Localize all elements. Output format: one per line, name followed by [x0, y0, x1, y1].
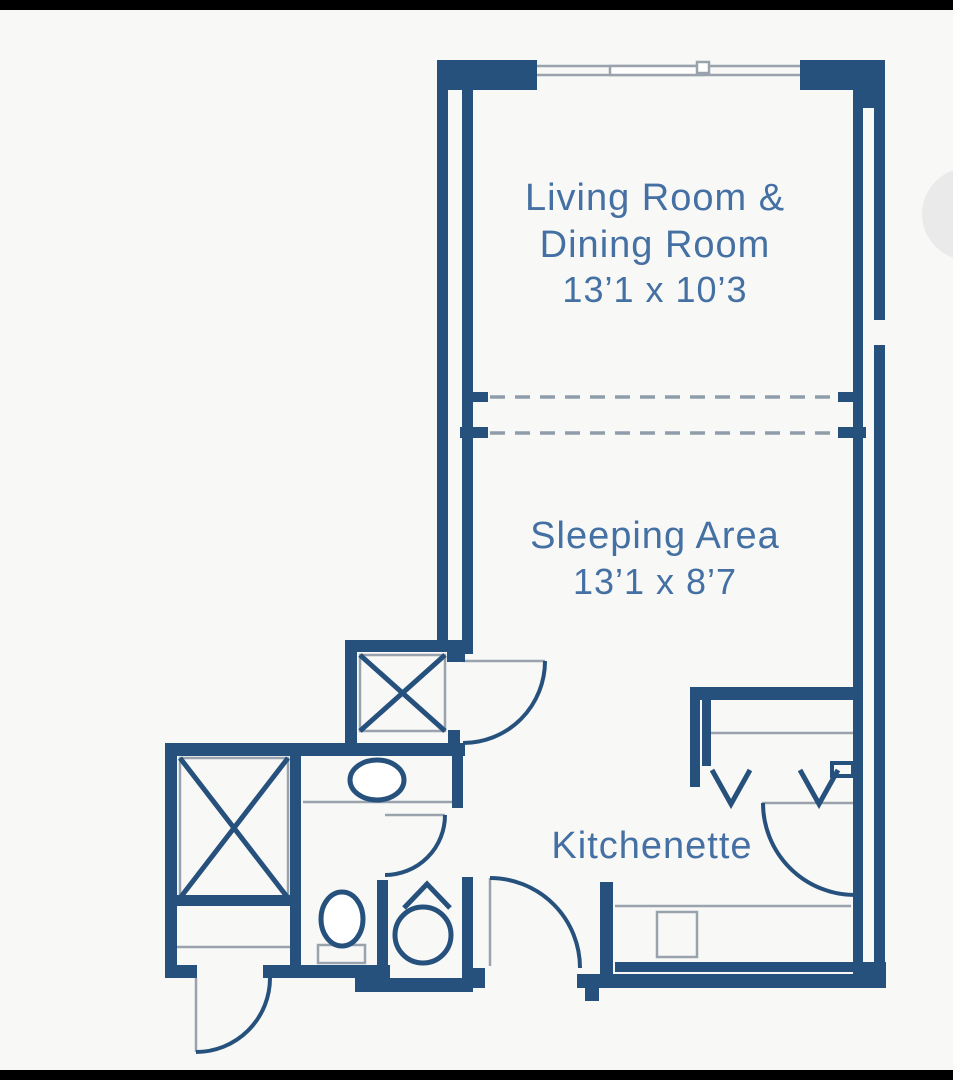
wall-bottom-exterior: [577, 974, 886, 988]
sleeping-area-label: Sleeping Area: [530, 515, 780, 557]
sleeping-area-dimensions: 13’1 x 8’7: [573, 561, 737, 602]
living-room-label-line1: Living Room &: [525, 177, 785, 219]
toilet-icon: [321, 892, 363, 946]
wall-toilet-shower-divider: [377, 880, 388, 972]
wall-closet-right-top: [690, 687, 863, 700]
wall-kitchen-inner-bottom: [615, 962, 855, 972]
wall-far-left: [165, 743, 177, 978]
wall-left-exterior: [437, 60, 448, 652]
wall-closet-small-top: [345, 640, 465, 652]
wall-top-left-block: [437, 60, 537, 90]
bottom-frame-bar: [0, 1070, 953, 1080]
wall-left-inner-upper: [462, 88, 473, 394]
wall-right-inner-upper: [853, 88, 863, 394]
wall-closet-small-left: [345, 640, 357, 750]
living-room-dimensions: 13’1 x 10’3: [562, 269, 747, 310]
wall-shower-bottom: [355, 978, 473, 992]
living-room-label-line2: Dining Room: [540, 224, 771, 266]
wall-closet-bath-divider: [290, 756, 301, 978]
wall-kitchen-stub: [600, 882, 613, 968]
floorplan-page: Living Room & Dining Room 13’1 x 10’3 Sl…: [0, 0, 953, 1080]
page-background: [0, 0, 953, 1080]
wall-right-inner-bottom: [853, 700, 863, 972]
door-jamb-tick: [447, 652, 465, 662]
wall-left-inner-lower: [462, 432, 473, 654]
wall-bottom-left-a: [165, 965, 197, 978]
wall-right-exterior-lower: [874, 345, 885, 988]
wall-closet-right-left: [690, 687, 700, 787]
floorplan-drawing: Living Room & Dining Room 13’1 x 10’3 Sl…: [0, 0, 953, 1080]
wall-right-exterior-upper: [874, 60, 885, 320]
wall-bath-top: [165, 743, 465, 756]
wall-bottom-right-corner: [853, 962, 886, 988]
kitchenette-label: Kitchenette: [551, 825, 752, 867]
wall-under-closet-box: [177, 895, 290, 906]
wall-right-inner-lower: [853, 432, 863, 692]
wall-shower-right: [462, 877, 473, 968]
top-frame-bar: [0, 0, 953, 10]
sink-icon: [350, 760, 404, 800]
wall-vanity-right: [452, 756, 463, 808]
